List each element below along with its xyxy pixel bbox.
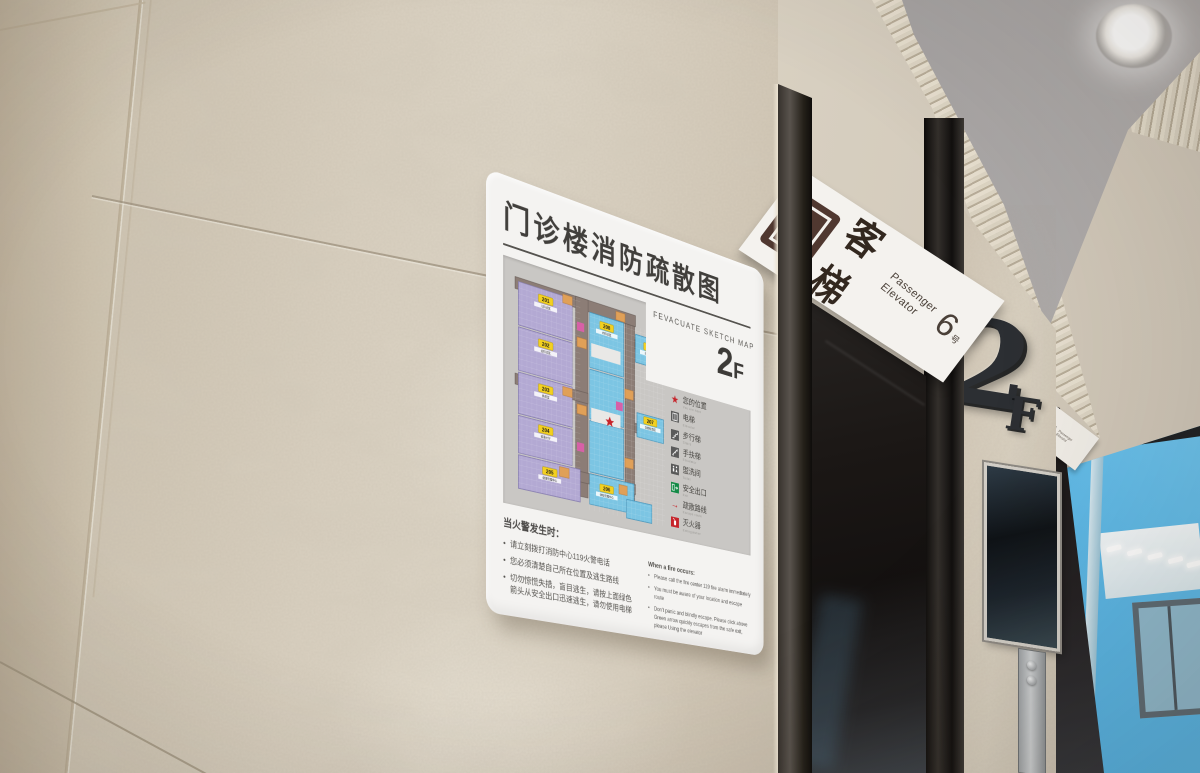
portal-edge-highlight bbox=[773, 84, 778, 773]
location-star-icon: ★ bbox=[671, 393, 680, 406]
sign-floor-number: 2 bbox=[717, 338, 734, 387]
elevator-door-frame bbox=[924, 118, 964, 773]
exit-icon bbox=[671, 481, 680, 494]
elevator-call-panel bbox=[1018, 648, 1046, 773]
escalator-icon bbox=[671, 446, 680, 459]
instructions-english: When a fire occurs: Please call the fire… bbox=[648, 561, 750, 650]
route-arrow-icon: → bbox=[671, 499, 680, 512]
stairs-icon bbox=[671, 428, 680, 441]
call-down-button[interactable] bbox=[1027, 675, 1036, 685]
elevator-icon bbox=[671, 410, 680, 423]
floor-plan-map: 201儿科诊区 202全科诊区 203换药室 204输液大厅 205健康管理中心… bbox=[507, 260, 690, 539]
extinguisher-icon bbox=[671, 516, 680, 529]
call-up-button[interactable] bbox=[1027, 660, 1036, 670]
sign-floor-suffix: F bbox=[733, 356, 744, 386]
map-legend: ★ 您的位置You are here 电梯Elevator 步行梯Stairs … bbox=[671, 393, 750, 551]
elevator-lobby-photo: 客梯 Passenger Elevator 2 F 客梯 Passenger bbox=[0, 0, 1200, 773]
elevator-portal-column bbox=[778, 84, 812, 773]
wall-display-screen bbox=[984, 462, 1060, 652]
opposite-building-corridor bbox=[1099, 523, 1200, 599]
recessed-downlight bbox=[1096, 4, 1172, 68]
opposite-building-window bbox=[1132, 598, 1200, 719]
toilet-icon bbox=[671, 463, 680, 476]
instructions-chinese: 当火警发生时： 请立刻拨打消防中心119火警电话 您必须清楚自己所在位置及逃生路… bbox=[503, 515, 638, 632]
floor-emblem-suffix: F bbox=[1002, 385, 1043, 443]
